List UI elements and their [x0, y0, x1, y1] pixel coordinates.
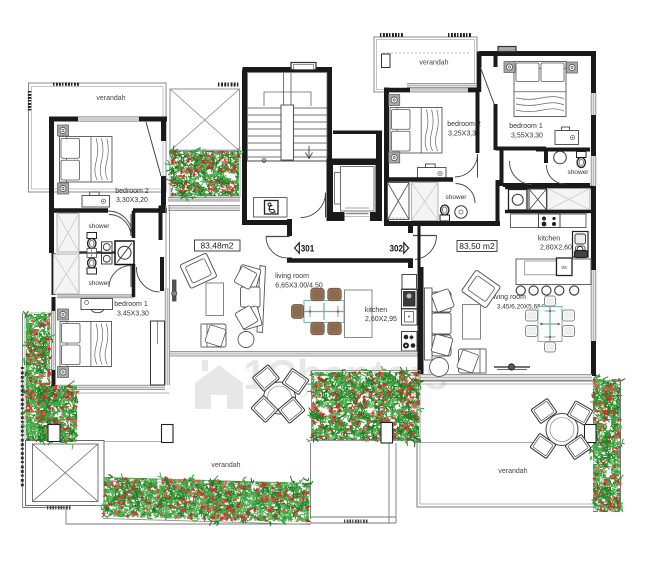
- svg-text:kitchen: kitchen: [538, 236, 560, 243]
- svg-text:living room: living room: [492, 294, 526, 301]
- svg-text:3,30X3,20: 3,30X3,20: [116, 197, 148, 204]
- svg-text:shower: shower: [89, 223, 111, 230]
- svg-text:3,45X3,30: 3,45X3,30: [117, 311, 149, 318]
- svg-text:shower: shower: [446, 194, 468, 201]
- svg-text:verandah: verandah: [419, 60, 448, 67]
- svg-text:2,60X2,95: 2,60X2,95: [365, 316, 397, 323]
- svg-text:living room: living room: [275, 273, 309, 280]
- svg-text:bedroom 1: bedroom 1: [509, 123, 543, 130]
- svg-text:bedroom 1: bedroom 1: [114, 301, 148, 308]
- svg-text:shower: shower: [568, 169, 590, 176]
- svg-text:301: 301: [301, 243, 315, 254]
- svg-text:wc: wc: [561, 265, 568, 271]
- svg-text:3,55X3,30: 3,55X3,30: [511, 133, 543, 140]
- svg-text:bedroom 2: bedroom 2: [115, 188, 149, 195]
- svg-text:kitchen: kitchen: [365, 307, 387, 314]
- svg-text:verandah: verandah: [211, 462, 240, 469]
- svg-text:302: 302: [390, 243, 404, 254]
- svg-text:83,50 m2: 83,50 m2: [459, 241, 495, 251]
- svg-text:verandah: verandah: [96, 95, 125, 102]
- svg-text:2,80X2,60: 2,80X2,60: [540, 245, 572, 252]
- svg-text:3,25X3,30: 3,25X3,30: [448, 131, 480, 138]
- svg-text:shower: shower: [89, 280, 111, 287]
- svg-text:verandah: verandah: [498, 468, 527, 475]
- svg-text:83,48m2: 83,48m2: [200, 241, 233, 251]
